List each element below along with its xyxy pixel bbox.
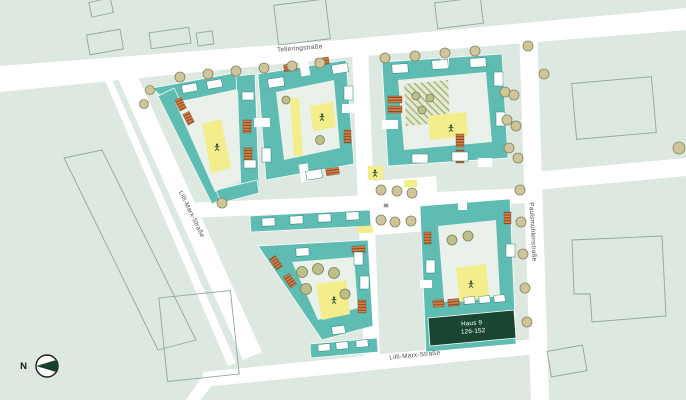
- tree-icon: [316, 136, 325, 145]
- site-plan-map: Haus 9 126-152: [0, 0, 686, 400]
- north-arrow-icon: [36, 355, 58, 377]
- tree-icon: [282, 96, 290, 104]
- north-label: N: [20, 361, 27, 372]
- block-bottom-right: Haus 9 126-152: [420, 198, 516, 352]
- site-plan-svg: Haus 9 126-152: [0, 0, 686, 400]
- block-top-right: [382, 52, 514, 167]
- haus9-name: Haus 9: [461, 319, 483, 327]
- block-top-middle: [254, 57, 356, 183]
- plaza-symbol-icon: [384, 204, 388, 207]
